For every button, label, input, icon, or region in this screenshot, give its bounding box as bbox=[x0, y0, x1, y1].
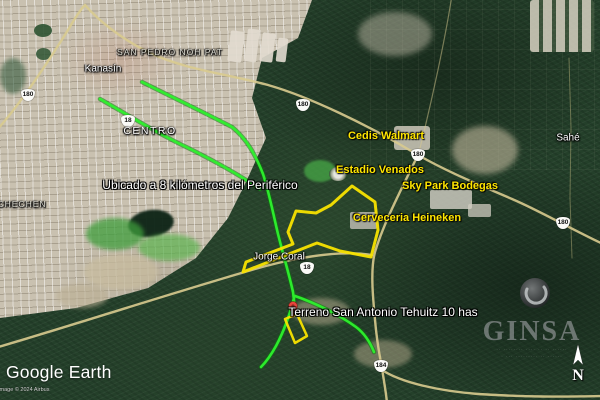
place-label-chechen: CHECHEN bbox=[0, 199, 47, 209]
place-label-san-pedro-noh-pat: SAN PEDRO NOH PAT bbox=[117, 47, 223, 57]
satellite-map[interactable]: 180 180 180 180 18 18 184 SAN PEDRO NOH … bbox=[0, 0, 600, 400]
north-arrow-icon bbox=[572, 344, 584, 366]
google-earth-logo: Google Earth bbox=[6, 362, 112, 383]
road-minor bbox=[420, 0, 452, 148]
ginsa-tagline: · ··· ········· ·· ······ bbox=[501, 354, 562, 359]
poi-label-estadio-venados[interactable]: Estadio Venados bbox=[336, 164, 424, 176]
place-label-jorge-coral: Jorge Coral bbox=[253, 252, 305, 263]
poi-label-sky-park-bodegas[interactable]: Sky Park Bodegas bbox=[402, 180, 498, 192]
poi-label-cedis-walmart[interactable]: Cedis Walmart bbox=[348, 130, 424, 142]
road-old-southwest bbox=[0, 253, 372, 348]
ginsa-tagline: ·· ········ ···· ·· ·· ······ bbox=[496, 347, 567, 352]
road-southeast-branch bbox=[382, 370, 600, 397]
ginsa-watermark: GINSA bbox=[483, 316, 582, 348]
highway-180-west bbox=[0, 5, 85, 132]
poi-label-cerveceria-heineken[interactable]: Cerveceria Heineken bbox=[353, 212, 461, 224]
north-label: N bbox=[572, 367, 584, 385]
ginsa-globe-icon bbox=[517, 275, 553, 311]
place-label-sahe: Sahé bbox=[556, 133, 579, 144]
place-label-kanasin: Kanasín bbox=[85, 64, 122, 75]
place-label-centro: CENTRO bbox=[123, 125, 176, 137]
annotation-periferico-distance[interactable]: Ubicado a 8 kilómetros del Periférico bbox=[102, 178, 297, 192]
imagery-credit: Image © 2024 Airbus bbox=[0, 387, 49, 393]
annotation-terreno-san-antonio[interactable]: Terreno San Antonio Tehuitz 10 has bbox=[288, 305, 477, 319]
